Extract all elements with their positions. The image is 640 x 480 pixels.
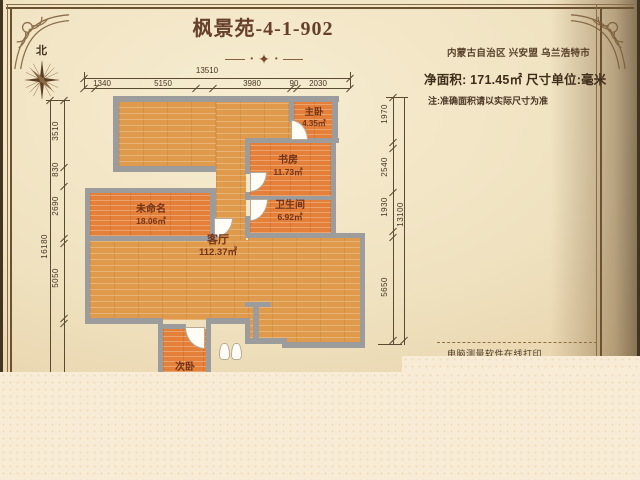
room-name: 书房 [253,154,323,167]
floor-living-top [119,102,216,168]
dim-line [386,97,408,98]
wall-segment [158,324,186,329]
dim-label-top-total: 13510 [192,66,222,75]
ornament-dash [225,59,245,60]
frame-line-top-outer [6,4,634,5]
net-area-text: 净面积: 171.45㎡ 尺寸单位:毫米 [424,69,624,88]
room-name: 次卧 [163,361,207,372]
title-divider-ornament: • ✦ • [204,51,324,67]
dim-label: 1930 [380,197,389,217]
dim-label: 830 [51,162,60,177]
wall-segment [113,96,339,102]
dim-line [50,100,51,372]
room-name: 卫生间 [254,199,326,212]
room-label-bathroom: 卫生间 6.92㎡ [254,199,326,223]
wall-segment [85,188,90,241]
wall-segment [245,138,250,174]
room-area: 4.35㎡ [292,119,336,129]
room-label-second-bedroom: 次卧 [163,361,207,372]
floorplan-page: 枫景苑-4-1-902 • ✦ • 北 内蒙古自治区 兴安盟 乌兰浩特市 净面积… [0,0,640,480]
footer-dashed-divider [437,342,597,343]
ornament-dot: • [275,55,278,63]
floorplan-image: 枫景苑-4-1-902 • ✦ • 北 内蒙古自治区 兴安盟 乌兰浩特市 净面积… [0,0,640,372]
floor-living-top [216,102,291,140]
dim-label: 3980 [237,79,267,88]
corner-flourish-icon [569,9,631,71]
dim-line [84,88,350,89]
wall-segment [113,96,119,172]
room-name: 客厅 [184,233,252,247]
entry-door-leaf [231,343,242,360]
dim-label: 2690 [51,196,60,216]
wall-segment [85,236,90,324]
wall-segment [331,143,336,238]
room-name: 主卧 [292,107,336,119]
page-title: 枫景苑-4-1-902 [130,12,396,41]
wall-segment [113,166,216,172]
entry-door-leaf [219,343,230,360]
frame-line-left-outer [7,4,8,372]
dim-label: 5150 [148,79,178,88]
frame-line-top-inner [6,7,634,9]
room-area: 6.92㎡ [254,212,326,223]
fleur-ornament-icon: ✦ [258,52,270,66]
floor-living-right [248,236,362,344]
wall-segment [360,238,365,344]
room-label-study: 书房 11.73㎡ [253,154,323,178]
wall-segment [206,318,250,324]
ornament-dash [283,59,303,60]
compass-rose-icon [23,60,61,100]
room-area: 11.73㎡ [253,167,323,178]
wall-segment [245,233,365,238]
wall-segment [282,342,365,348]
frame-edge-left [0,0,3,372]
ornament-dot: • [250,55,253,63]
room-area: 18.06㎡ [115,216,187,227]
room-name: 未命名 [115,203,187,216]
dim-line [393,97,394,345]
wall-segment [253,306,259,339]
location-text: 内蒙古自治区 兴安盟 乌兰浩特市 [447,45,617,59]
dim-label: 5050 [51,268,60,288]
dim-label: 3510 [51,121,60,141]
room-label-living: 客厅 112.37㎡ [184,233,252,260]
room-label-master: 主卧 4.35㎡ [292,107,336,130]
room-label-unnamed: 未命名 18.06㎡ [115,203,187,227]
page-bottom-blank [0,372,640,480]
accuracy-note: 注:准确面积请以实际尺寸为准 [428,94,618,107]
wall-segment [245,338,287,344]
room-area: 112.37㎡ [184,247,252,259]
dim-label-left-total: 16180 [40,234,49,259]
image-cut-patch [402,356,640,372]
dim-label: 2540 [380,157,389,177]
north-label: 北 [36,42,47,58]
wall-segment [85,188,216,193]
dim-label: 1970 [380,104,389,124]
wall-segment [85,318,163,324]
dim-label: 5650 [380,277,389,297]
dim-label: 2030 [303,79,333,88]
dim-label-right-total: 13100 [396,202,405,227]
dim-label: 1340 [87,79,117,88]
